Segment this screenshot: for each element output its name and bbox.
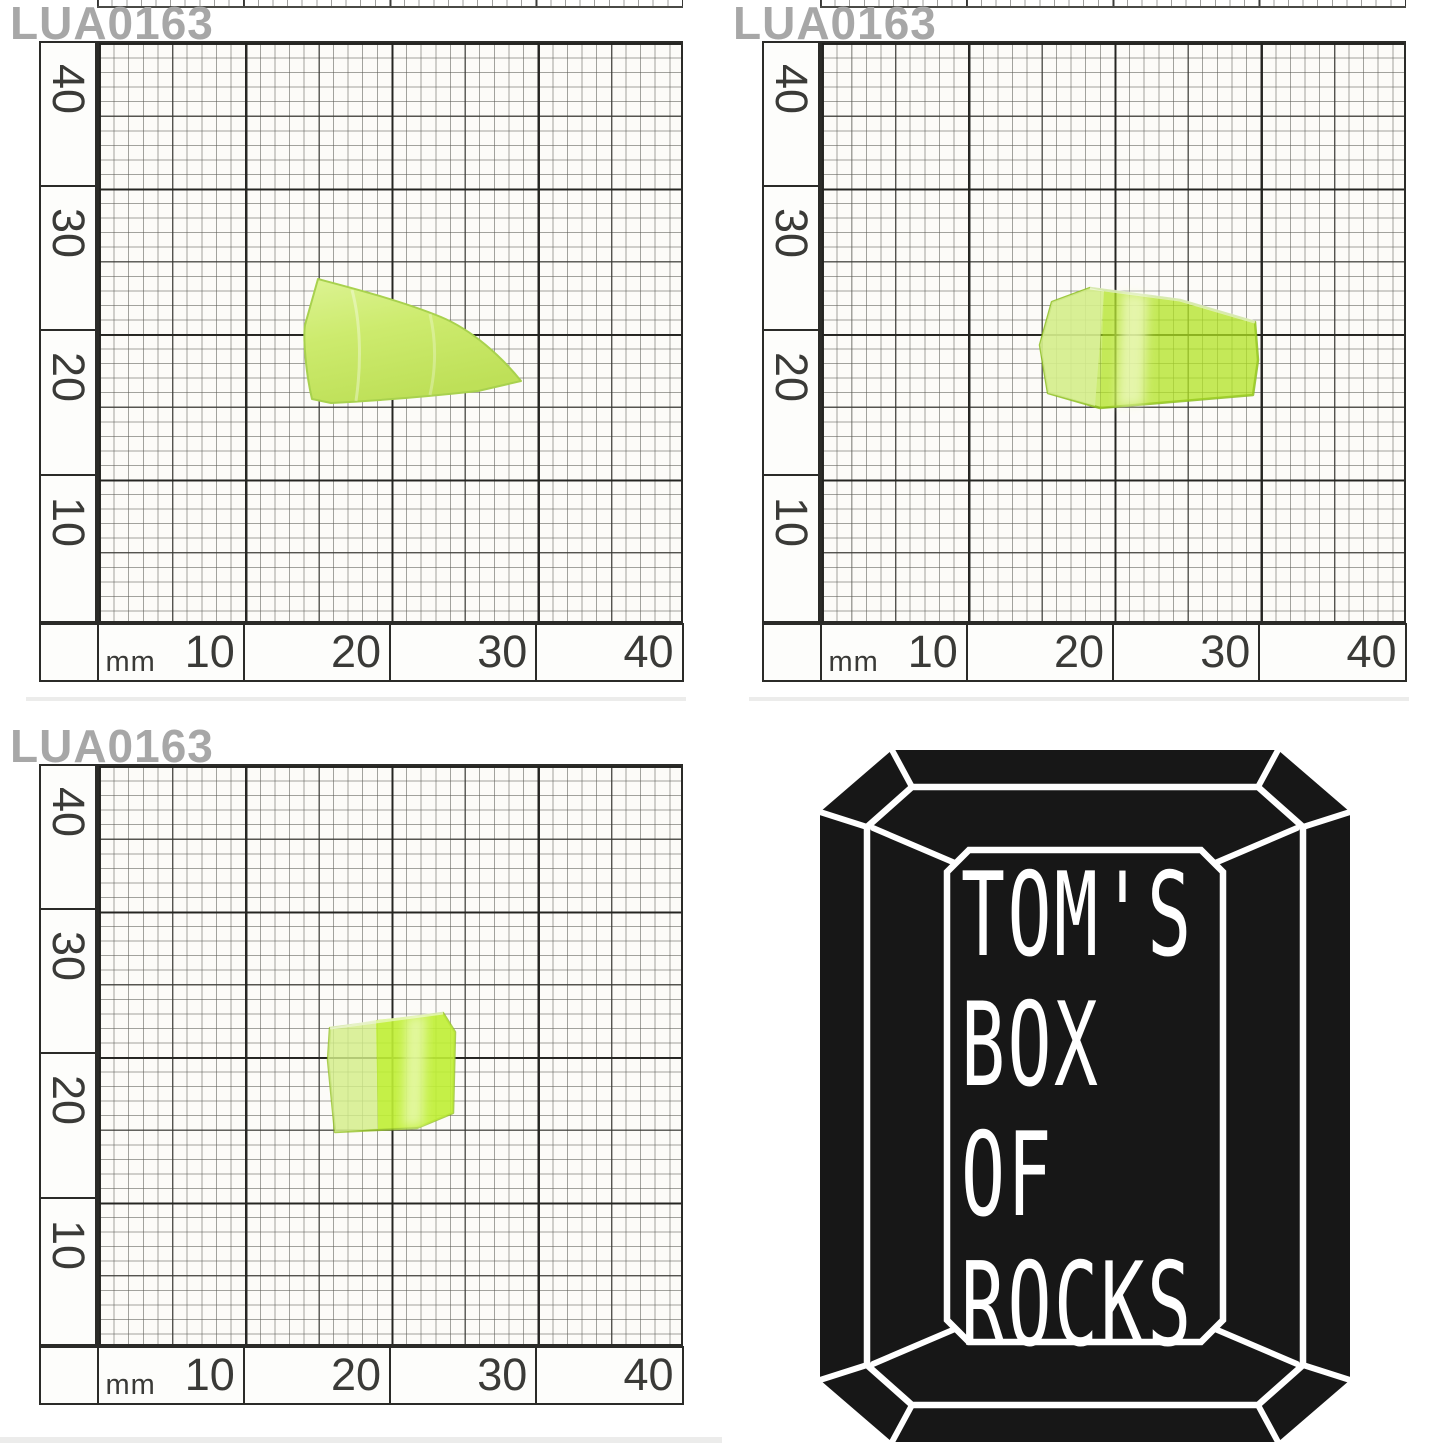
mm-unit-label: mm (106, 1371, 156, 1400)
horizontal-mm-axis: mm10 20 30 40 (39, 623, 684, 682)
h-axis-tick: 30 (477, 626, 527, 677)
millimeter-grid-paper (97, 41, 683, 623)
h-axis-tick: 10 (185, 1349, 235, 1400)
h-axis-tick: 30 (477, 1349, 527, 1400)
vertical-mm-axis: 40 30 20 10 (39, 764, 97, 1346)
axis-corner-cell (41, 1348, 97, 1403)
logo-line: TOM'S (961, 851, 1150, 981)
product-photo-collage: { "specimen": { "id": "LUA0163" }, "scal… (0, 0, 1445, 1445)
specimen-id-label: LUA0163 (10, 719, 214, 773)
v-axis-tick: 30 (42, 208, 94, 258)
logo-wordmark: TOM'S BOX OF ROCKS (961, 851, 1150, 1371)
axis-corner-cell (764, 625, 820, 680)
mm-unit-label: mm (106, 648, 156, 677)
h-axis-tick: 10 (908, 626, 958, 677)
paper-edge-shadow (0, 1437, 722, 1443)
specimen-id-label: LUA0163 (733, 0, 937, 50)
mm-unit-label: mm (829, 648, 879, 677)
v-axis-tick: 20 (765, 352, 817, 402)
h-axis-tick: 20 (1054, 626, 1104, 677)
vertical-mm-axis: 40 30 20 10 (762, 41, 820, 623)
vertical-mm-axis: 40 30 20 10 (39, 41, 97, 623)
horizontal-mm-axis: mm10 20 30 40 (762, 623, 1407, 682)
paper-edge-shadow (749, 697, 1409, 701)
v-axis-tick: 10 (42, 1220, 94, 1270)
h-axis-tick: 40 (623, 626, 673, 677)
specimen-id-label: LUA0163 (10, 0, 214, 50)
logo-line: BOX (961, 981, 1150, 1111)
h-axis-tick: 20 (331, 1349, 381, 1400)
photo-panel-2: LUA0163 40 30 20 10 mm10 20 30 40 (723, 0, 1445, 722)
h-axis-tick: 40 (623, 1349, 673, 1400)
v-axis-tick: 30 (42, 931, 94, 981)
horizontal-mm-axis: mm10 20 30 40 (39, 1346, 684, 1405)
axis-corner-cell (41, 625, 97, 680)
photo-panel-3: LUA0163 40 30 20 10 mm10 20 30 40 (0, 723, 722, 1445)
v-axis-tick: 20 (42, 1075, 94, 1125)
millimeter-grid-paper (97, 764, 683, 1346)
v-axis-tick: 10 (42, 497, 94, 547)
h-axis-tick: 40 (1346, 626, 1396, 677)
h-axis-tick: 20 (331, 626, 381, 677)
v-axis-tick: 40 (765, 64, 817, 114)
millimeter-grid-paper (820, 41, 1406, 623)
h-axis-tick: 30 (1200, 626, 1250, 677)
v-axis-tick: 30 (765, 208, 817, 258)
v-axis-tick: 40 (42, 64, 94, 114)
brand-logo-panel: TOM'S BOX OF ROCKS (723, 723, 1445, 1445)
h-axis-tick: 10 (185, 626, 235, 677)
v-axis-tick: 10 (765, 497, 817, 547)
photo-panel-1: LUA0163 40 30 20 10 mm10 20 30 40 (0, 0, 722, 722)
logo-line: OF (961, 1111, 1150, 1241)
logo-line: ROCKS (961, 1241, 1150, 1371)
v-axis-tick: 40 (42, 787, 94, 837)
paper-edge-shadow (26, 697, 686, 701)
v-axis-tick: 20 (42, 352, 94, 402)
